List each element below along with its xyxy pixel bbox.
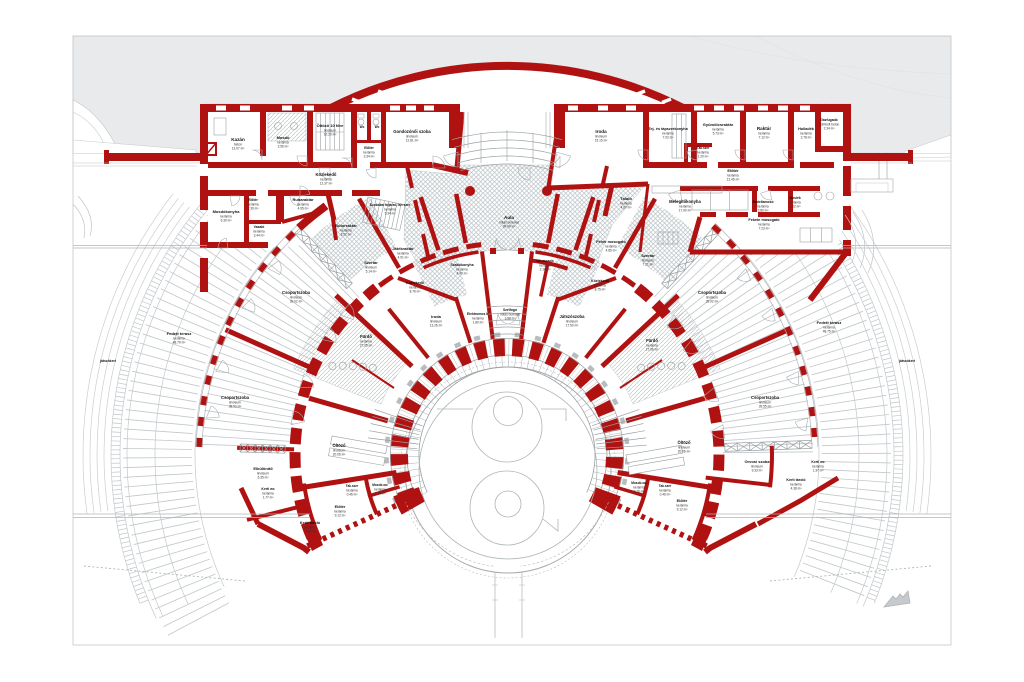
svg-text:13.26 m²: 13.26 m² xyxy=(430,323,443,327)
svg-text:1.37 m²: 1.37 m² xyxy=(813,468,824,472)
svg-text:6.35 m²: 6.35 m² xyxy=(258,475,269,479)
svg-text:Mosdó-wc: Mosdó-wc xyxy=(631,481,647,485)
svg-text:12.81 m²: 12.81 m² xyxy=(406,138,419,142)
svg-text:Tak.szer: Tak.szer xyxy=(659,484,672,488)
svg-text:Előtér: Előtér xyxy=(335,505,346,509)
svg-text:Fedett terasz: Fedett terasz xyxy=(167,331,192,336)
svg-text:2.76 m²: 2.76 m² xyxy=(375,491,386,495)
svg-text:Gázfugadó: Gázfugadó xyxy=(820,118,838,122)
svg-text:5.14 m²: 5.14 m² xyxy=(366,269,377,273)
svg-text:1.80 m²: 1.80 m² xyxy=(473,320,484,324)
svg-text:Öltöző: Öltöző xyxy=(332,443,345,448)
svg-text:Szélfogó: Szélfogó xyxy=(503,308,517,312)
svg-text:Gondozónői szoba: Gondozónői szoba xyxy=(393,129,431,134)
svg-text:Szabókonyha: Szabókonyha xyxy=(450,263,474,267)
svg-text:4.38 m²: 4.38 m² xyxy=(305,529,316,533)
svg-text:4.38 m²: 4.38 m² xyxy=(791,486,802,490)
svg-text:Kerti wc: Kerti wc xyxy=(261,487,274,491)
svg-text:Csoportszoba: Csoportszoba xyxy=(751,395,780,400)
svg-text:20.06 m²: 20.06 m² xyxy=(678,449,691,453)
svg-text:15.15 m²: 15.15 m² xyxy=(595,138,608,142)
svg-text:20.06 m²: 20.06 m² xyxy=(333,452,346,456)
svg-text:4.95 m²: 4.95 m² xyxy=(298,206,309,210)
svg-text:Elektromos k.: Elektromos k. xyxy=(467,312,489,316)
svg-text:Fürdő: Fürdő xyxy=(646,338,658,343)
svg-text:Játékraktár: Játékraktár xyxy=(392,246,414,251)
svg-text:Mosdó: Mosdó xyxy=(277,135,290,140)
svg-text:3.88 m²: 3.88 m² xyxy=(505,316,516,320)
svg-text:Előtér: Előtér xyxy=(364,146,374,150)
svg-text:Gyümölcsraktár: Gyümölcsraktár xyxy=(703,122,734,127)
svg-text:8.76 m²: 8.76 m² xyxy=(410,289,421,293)
svg-text:Kazán: Kazán xyxy=(231,137,245,142)
svg-text:Kerti tároló: Kerti tároló xyxy=(300,521,321,525)
svg-text:48.75 m²: 48.75 m² xyxy=(823,329,836,333)
svg-text:5.73 m²: 5.73 m² xyxy=(713,131,724,135)
svg-text:Előtér: Előtér xyxy=(727,168,739,173)
svg-text:2.16 m²: 2.16 m² xyxy=(540,267,551,271)
svg-text:0.46 m²: 0.46 m² xyxy=(347,492,358,496)
svg-text:Csoportszoba: Csoportszoba xyxy=(698,290,727,295)
svg-text:Kerti wc: Kerti wc xyxy=(811,460,824,464)
svg-text:Szobába feljárat, lsh szer: Szobába feljárat, lsh szer xyxy=(370,203,411,207)
svg-text:6.30 m²: 6.30 m² xyxy=(221,218,232,222)
svg-text:Előtér: Előtér xyxy=(677,499,688,503)
svg-text:2.76 m²: 2.76 m² xyxy=(634,489,645,493)
svg-text:7.21 m²: 7.21 m² xyxy=(643,262,654,266)
svg-text:Közlekedő: Közlekedő xyxy=(591,279,610,283)
svg-text:4.67 m²: 4.67 m² xyxy=(621,205,632,209)
svg-text:Fekete mosogató: Fekete mosogató xyxy=(748,218,780,222)
svg-text:Ruharaktár: Ruharaktár xyxy=(292,197,314,202)
svg-text:3.80 m²: 3.80 m² xyxy=(758,208,769,212)
svg-text:0.46 m²: 0.46 m² xyxy=(660,492,671,496)
svg-text:7.12 m²: 7.12 m² xyxy=(759,135,770,139)
svg-text:10.20 m²: 10.20 m² xyxy=(324,132,337,136)
svg-text:Csoportszoba: Csoportszoba xyxy=(221,395,250,400)
svg-text:Mosdókonyha: Mosdókonyha xyxy=(213,209,241,214)
svg-text:7.23 m²: 7.23 m² xyxy=(759,226,770,230)
svg-text:Wc-mosdó: Wc-mosdó xyxy=(536,259,553,263)
svg-text:4.40 m²: 4.40 m² xyxy=(457,271,468,275)
svg-text:27.06 m²: 27.06 m² xyxy=(646,347,659,351)
svg-text:Iroda: Iroda xyxy=(595,129,607,134)
svg-text:Csoportszoba: Csoportszoba xyxy=(282,290,311,295)
svg-text:38.53 m²: 38.53 m² xyxy=(229,404,242,408)
svg-text:Közlekedő: Közlekedő xyxy=(406,281,425,285)
svg-text:5.34 m²: 5.34 m² xyxy=(385,211,396,215)
svg-text:13.07 m²: 13.07 m² xyxy=(232,146,245,150)
svg-text:8.75 m²: 8.75 m² xyxy=(595,287,606,291)
svg-text:8.52 m²: 8.52 m² xyxy=(341,232,352,236)
svg-text:4.91 m²: 4.91 m² xyxy=(398,255,409,259)
svg-text:39.02 m²: 39.02 m² xyxy=(706,299,719,303)
svg-text:17.90 m²: 17.90 m² xyxy=(679,208,692,212)
svg-text:3.34 m²: 3.34 m² xyxy=(364,154,375,158)
svg-text:2.39 m²: 2.39 m² xyxy=(248,206,259,210)
svg-text:39.55 m²: 39.55 m² xyxy=(759,404,772,408)
svg-text:3.56 m²: 3.56 m² xyxy=(278,144,289,148)
svg-text:Előtér: Előtér xyxy=(248,198,258,202)
svg-text:Raktár: Raktár xyxy=(757,126,772,131)
svg-text:Szertár: Szertár xyxy=(641,253,655,258)
svg-text:Játszószoba: Játszószoba xyxy=(560,314,586,319)
svg-text:3.44 m²: 3.44 m² xyxy=(254,233,265,237)
svg-text:Hulladék: Hulladék xyxy=(798,127,815,131)
svg-text:Wc: Wc xyxy=(360,125,365,129)
svg-text:Orvosi szoba: Orvosi szoba xyxy=(744,459,770,464)
svg-text:Moslék: Moslék xyxy=(789,196,801,200)
svg-text:17.50 m²: 17.50 m² xyxy=(566,323,579,327)
svg-text:9.33 m²: 9.33 m² xyxy=(752,468,763,472)
svg-text:Aula: Aula xyxy=(504,215,514,220)
svg-text:Vasaló: Vasaló xyxy=(254,225,265,229)
svg-text:játszókert: játszókert xyxy=(99,359,117,363)
svg-text:39.02 m²: 39.02 m² xyxy=(290,299,303,303)
svg-text:Elkülönítő: Elkülönítő xyxy=(253,466,273,471)
svg-text:Iroda: Iroda xyxy=(431,314,442,319)
svg-text:99.99 m²: 99.99 m² xyxy=(503,224,516,228)
svg-text:Fürdő: Fürdő xyxy=(360,334,372,339)
svg-text:Öltöző: Öltöző xyxy=(677,440,690,445)
svg-text:Wc: Wc xyxy=(375,125,380,129)
svg-text:Öltöző 10 főre: Öltöző 10 főre xyxy=(317,123,344,128)
svg-text:Tej- és tápszerkonyha: Tej- és tápszerkonyha xyxy=(648,127,688,131)
svg-text:Kerti tároló: Kerti tároló xyxy=(786,478,806,482)
svg-text:2.34 m²: 2.34 m² xyxy=(824,126,835,130)
svg-text:Badellamosó: Badellamosó xyxy=(752,200,773,204)
svg-text:27.05 m²: 27.05 m² xyxy=(360,343,373,347)
svg-text:9.12 m²: 9.12 m² xyxy=(677,507,688,511)
svg-text:Melegítőkonyha: Melegítőkonyha xyxy=(669,199,701,204)
svg-text:Közlekedő: Közlekedő xyxy=(316,172,337,177)
svg-text:48.79 m²: 48.79 m² xyxy=(173,340,186,344)
svg-text:1.20 m²: 1.20 m² xyxy=(698,154,709,158)
svg-text:1.77 m²: 1.77 m² xyxy=(263,495,274,499)
svg-text:Fehér mosogató: Fehér mosogató xyxy=(596,240,626,244)
svg-text:Tálaló: Tálaló xyxy=(620,196,632,201)
svg-text:2.78 m²: 2.78 m² xyxy=(801,135,812,139)
svg-text:12.37 m²: 12.37 m² xyxy=(320,181,333,185)
svg-text:Ták.szer: Ták.szer xyxy=(697,146,711,150)
svg-text:7.02 m²: 7.02 m² xyxy=(663,135,674,139)
svg-text:9.12 m²: 9.12 m² xyxy=(335,513,346,517)
svg-text:4.85 m²: 4.85 m² xyxy=(606,248,617,252)
svg-text:3.52 m²: 3.52 m² xyxy=(790,204,801,208)
svg-text:játszókert: játszókert xyxy=(898,359,916,363)
svg-text:Fedett terasz: Fedett terasz xyxy=(817,320,842,325)
svg-text:Mosdó-wc: Mosdó-wc xyxy=(372,483,388,487)
svg-text:Bútorraktár: Bútorraktár xyxy=(335,223,357,228)
svg-text:Szertár: Szertár xyxy=(364,260,378,265)
svg-text:12.46 m²: 12.46 m² xyxy=(727,177,740,181)
svg-text:Tak.szer: Tak.szer xyxy=(346,484,359,488)
